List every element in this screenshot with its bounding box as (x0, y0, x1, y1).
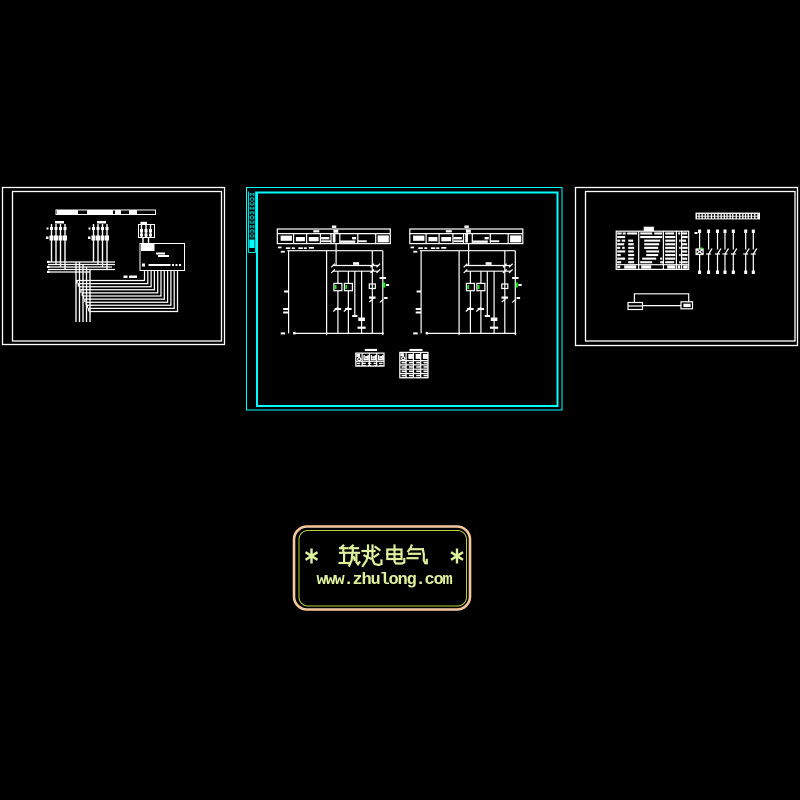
svg-text:www.zhulong.com: www.zhulong.com (316, 571, 452, 590)
